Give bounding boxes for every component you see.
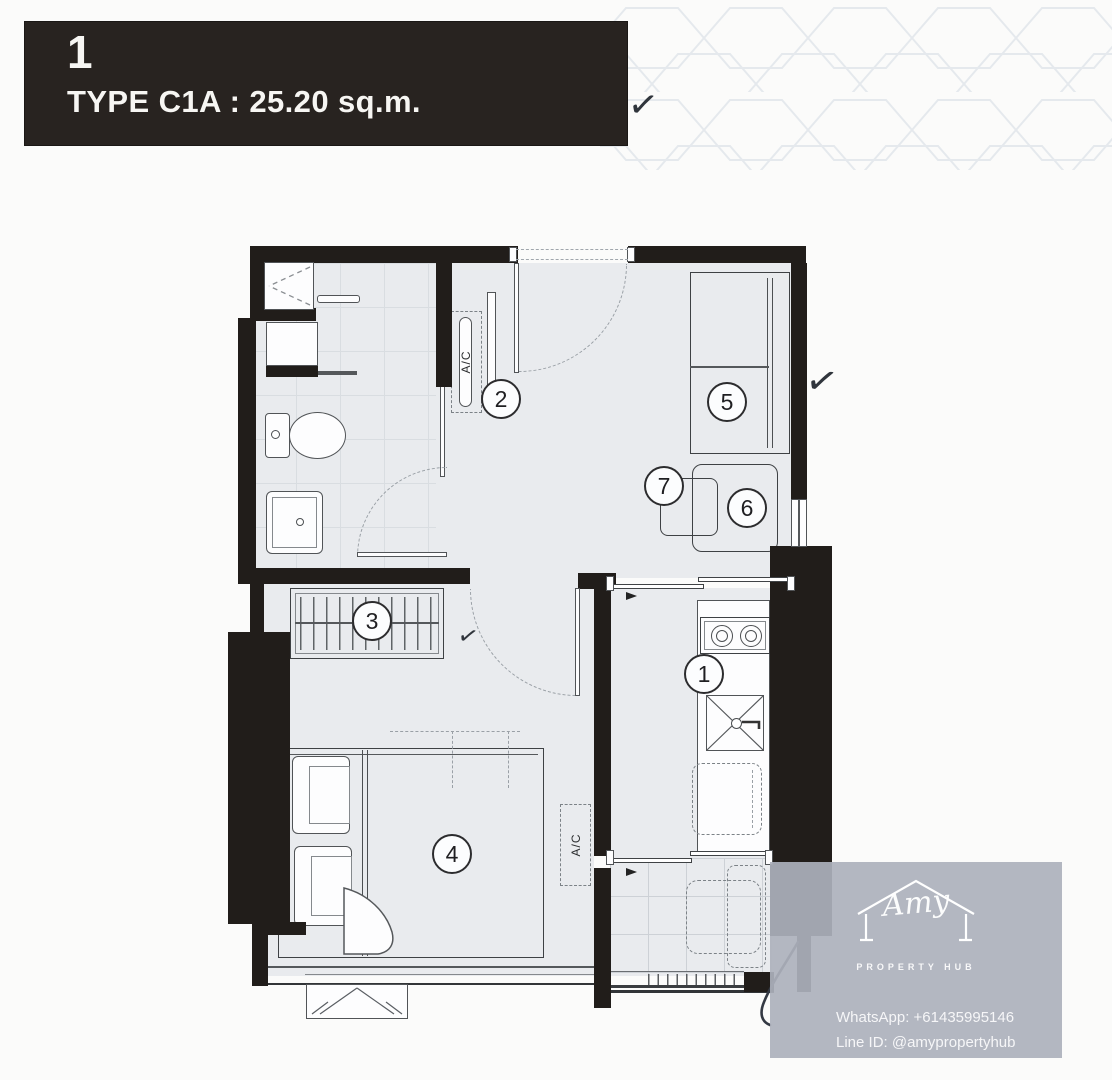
toilet-flush-button bbox=[271, 430, 280, 439]
glass-screen bbox=[440, 385, 445, 477]
blanket-fold bbox=[338, 884, 402, 958]
shaft-1-marks bbox=[264, 262, 314, 310]
bedroom-door-leaf bbox=[575, 588, 580, 696]
wall-segment-13 bbox=[250, 570, 264, 636]
room-marker-7: 7 bbox=[644, 466, 684, 506]
pen-check-2: ✓ bbox=[802, 359, 841, 403]
pillow-1-inner bbox=[309, 766, 350, 824]
kitchen-faucet bbox=[742, 713, 768, 731]
fridge-inner-line bbox=[752, 770, 754, 828]
burner-1-inner bbox=[716, 630, 728, 642]
bathroom-sink-inner bbox=[272, 497, 317, 548]
entrance-threshold bbox=[516, 249, 628, 260]
sofa-arm bbox=[767, 278, 773, 448]
room-marker-4: 4 bbox=[432, 834, 472, 874]
entrance-door-leaf bbox=[514, 263, 519, 373]
projecting-window-marks bbox=[306, 984, 408, 1019]
balcony-slider-jamb-1 bbox=[606, 850, 614, 865]
bathroom-door-leaf bbox=[357, 552, 447, 557]
curtain-drop-2 bbox=[508, 731, 510, 788]
balcony-slider-arrow bbox=[626, 868, 637, 876]
watermark-whatsapp: WhatsApp: +61435995146 bbox=[836, 1006, 1015, 1031]
curtain-track bbox=[390, 731, 520, 733]
room-marker-5: 5 bbox=[707, 382, 747, 422]
pen-check-1: ✓ bbox=[626, 86, 661, 126]
wall-segment-12 bbox=[228, 632, 290, 924]
wall-segment-14 bbox=[594, 588, 611, 856]
room-marker-1: 1 bbox=[684, 654, 724, 694]
sofa-divider bbox=[690, 366, 769, 368]
watermark-line-id: Line ID: @amypropertyhub bbox=[836, 1031, 1015, 1056]
room-marker-6: 6 bbox=[727, 488, 767, 528]
wall-segment-6 bbox=[254, 568, 470, 584]
ac-label-bedroom: A/C bbox=[551, 820, 601, 870]
watermark-brand-subtitle: PROPERTY HUB bbox=[770, 962, 1062, 972]
ac-label-hall: A/C bbox=[441, 337, 491, 387]
room-marker-2: 2 bbox=[481, 379, 521, 419]
kitchen-slider-panel-1 bbox=[612, 584, 704, 589]
shower-shelf bbox=[317, 371, 357, 375]
wall-segment-1 bbox=[250, 246, 518, 263]
window-sill-1 bbox=[268, 966, 598, 968]
door-floor-patch bbox=[468, 570, 596, 590]
wall-segment-19 bbox=[266, 366, 318, 377]
balcony-slider-panel-1 bbox=[612, 858, 692, 863]
unit-type-label: TYPE C1A : 25.20 sq.m. bbox=[25, 75, 627, 120]
scanned-floor-plan-page: { "title_block": { "unit_number": "1", "… bbox=[0, 0, 1112, 1080]
watermark-contacts: WhatsApp: +61435995146 Line ID: @amyprop… bbox=[836, 1006, 1015, 1056]
wall-segment-2 bbox=[628, 246, 806, 263]
wall-segment-15 bbox=[594, 868, 611, 1008]
entrance-jamb-right bbox=[627, 247, 635, 262]
burner-2-inner bbox=[745, 630, 757, 642]
bed-inner-line bbox=[284, 754, 538, 755]
wall-segment-18 bbox=[268, 922, 306, 935]
kitchen-slider-panel-2 bbox=[698, 577, 792, 582]
wall-segment-17 bbox=[252, 922, 268, 986]
right-window-line bbox=[798, 500, 800, 546]
kitchen-slider-jamb-1 bbox=[606, 576, 614, 591]
kitchen-sink-tap-base bbox=[731, 718, 742, 729]
kitchen-slider-jamb-2 bbox=[787, 576, 795, 591]
wall-segment-5 bbox=[238, 318, 256, 584]
towel-bar bbox=[317, 295, 360, 303]
title-block: 1 TYPE C1A : 25.20 sq.m. bbox=[25, 22, 627, 145]
curtain-drop-1 bbox=[452, 731, 454, 788]
unit-number: 1 bbox=[25, 22, 627, 75]
sink-drain bbox=[296, 518, 304, 526]
window-sill-2 bbox=[305, 974, 596, 975]
balcony-slider-panel-2 bbox=[690, 851, 772, 856]
drain-grate bbox=[648, 974, 740, 985]
toilet-bowl bbox=[289, 412, 346, 459]
kitchen-slider-arrow bbox=[626, 592, 637, 600]
watermark: Amy PROPERTY HUB WhatsApp: +61435995146 … bbox=[770, 862, 1062, 1058]
room-marker-3: 3 bbox=[352, 601, 392, 641]
shaft-2 bbox=[266, 322, 318, 366]
sofa bbox=[690, 272, 790, 454]
